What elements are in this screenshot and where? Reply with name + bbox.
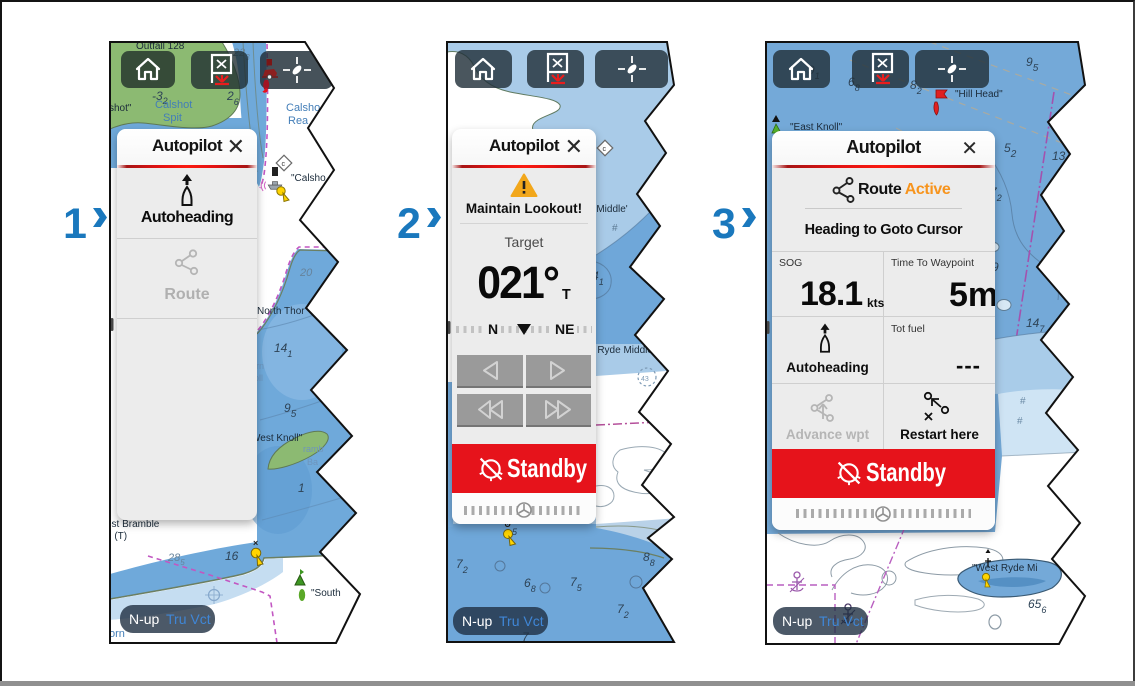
- svg-text:Calsho: Calsho: [286, 102, 320, 114]
- svg-text:Ba: Ba: [307, 457, 318, 467]
- svg-text:45: 45: [1058, 261, 1071, 280]
- svg-text:20: 20: [299, 267, 313, 279]
- svg-text:c: c: [282, 161, 286, 168]
- svg-text:est Bramble: est Bramble: [106, 519, 160, 530]
- svg-text:rn: rn: [256, 361, 264, 371]
- svg-text:#: #: [1017, 416, 1023, 427]
- svg-text:ramb: ramb: [303, 444, 324, 454]
- svg-text:Spit: Spit: [163, 112, 182, 124]
- svg-text:16: 16: [225, 549, 239, 563]
- svg-text:orn: orn: [109, 628, 125, 640]
- svg-text:"South: "South: [311, 588, 341, 599]
- svg-text:c: c: [603, 146, 607, 153]
- svg-text:#: #: [1020, 396, 1026, 407]
- svg-text:13: 13: [1052, 149, 1066, 163]
- svg-text:×: ×: [253, 538, 258, 548]
- svg-text:"Calsho: "Calsho: [291, 173, 326, 184]
- svg-text:North Thor: North Thor: [257, 306, 305, 317]
- svg-text:#: #: [612, 223, 618, 234]
- svg-text:Tru Vct: Tru Vct: [166, 611, 211, 627]
- svg-text:1: 1: [298, 481, 305, 495]
- svg-text:Calshot: Calshot: [155, 99, 192, 111]
- svg-text:shot": shot": [109, 103, 132, 114]
- svg-text:West Knoll": West Knoll": [251, 433, 303, 444]
- svg-text:Rea: Rea: [288, 115, 309, 127]
- svg-text:N-up: N-up: [782, 613, 813, 629]
- svg-text:Tru Vct: Tru Vct: [499, 613, 544, 629]
- svg-text:-Middle': -Middle': [593, 204, 628, 215]
- svg-text:"Hill Head": "Hill Head": [955, 89, 1003, 100]
- svg-text:Middle: Middle: [642, 324, 669, 334]
- svg-text:"West Ryde Mi: "West Ryde Mi: [972, 563, 1038, 574]
- svg-text:43: 43: [641, 376, 649, 383]
- svg-text:N-up: N-up: [462, 613, 493, 629]
- svg-text:Tru Vct: Tru Vct: [819, 613, 864, 629]
- svg-text:N-up: N-up: [129, 611, 160, 627]
